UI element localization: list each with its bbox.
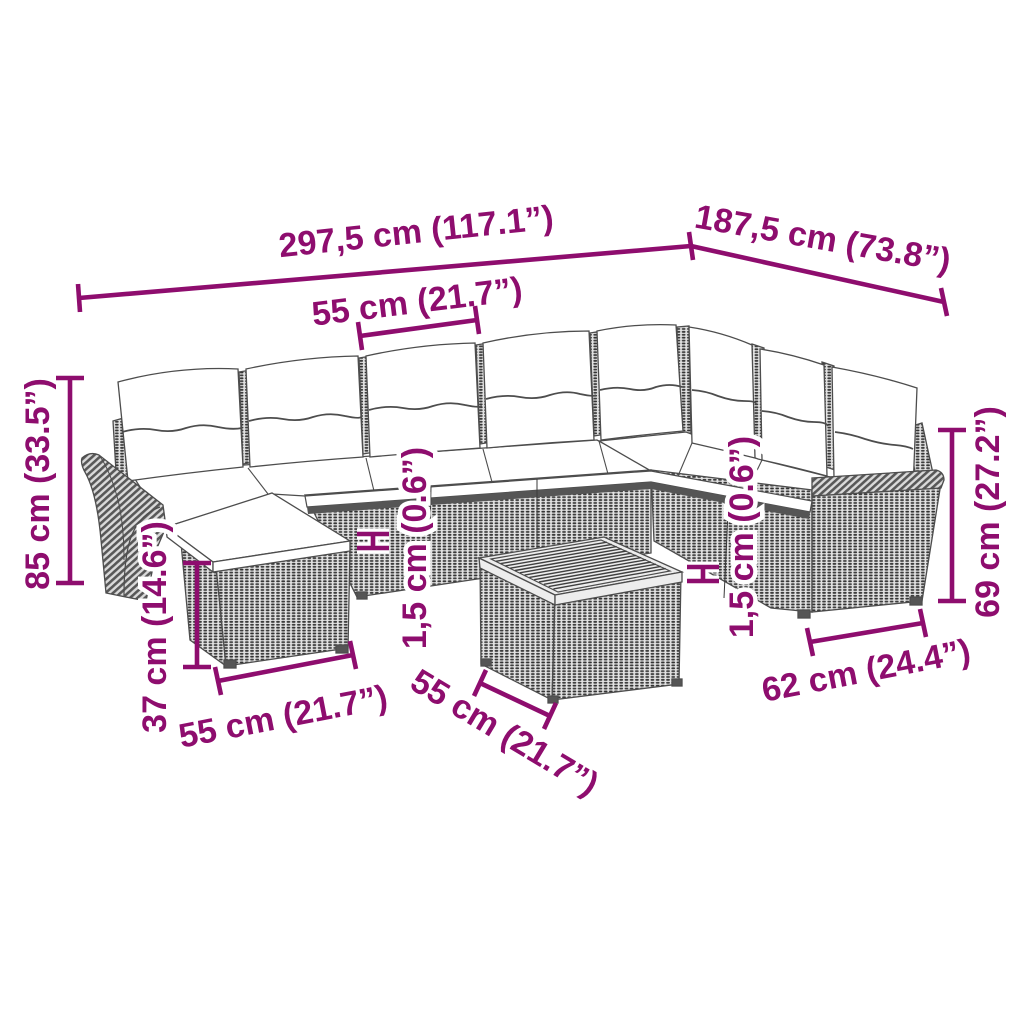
svg-text:69 cm (27.2”): 69 cm (27.2”)	[969, 406, 1007, 618]
svg-text:1,5 cm (0.6”): 1,5 cm (0.6”)	[723, 436, 761, 638]
svg-text:1,5 cm (0.6”): 1,5 cm (0.6”)	[396, 447, 434, 649]
svg-text:37 cm (14.6”): 37 cm (14.6”)	[136, 521, 174, 733]
svg-text:85 cm (33.5”): 85 cm (33.5”)	[19, 378, 57, 590]
